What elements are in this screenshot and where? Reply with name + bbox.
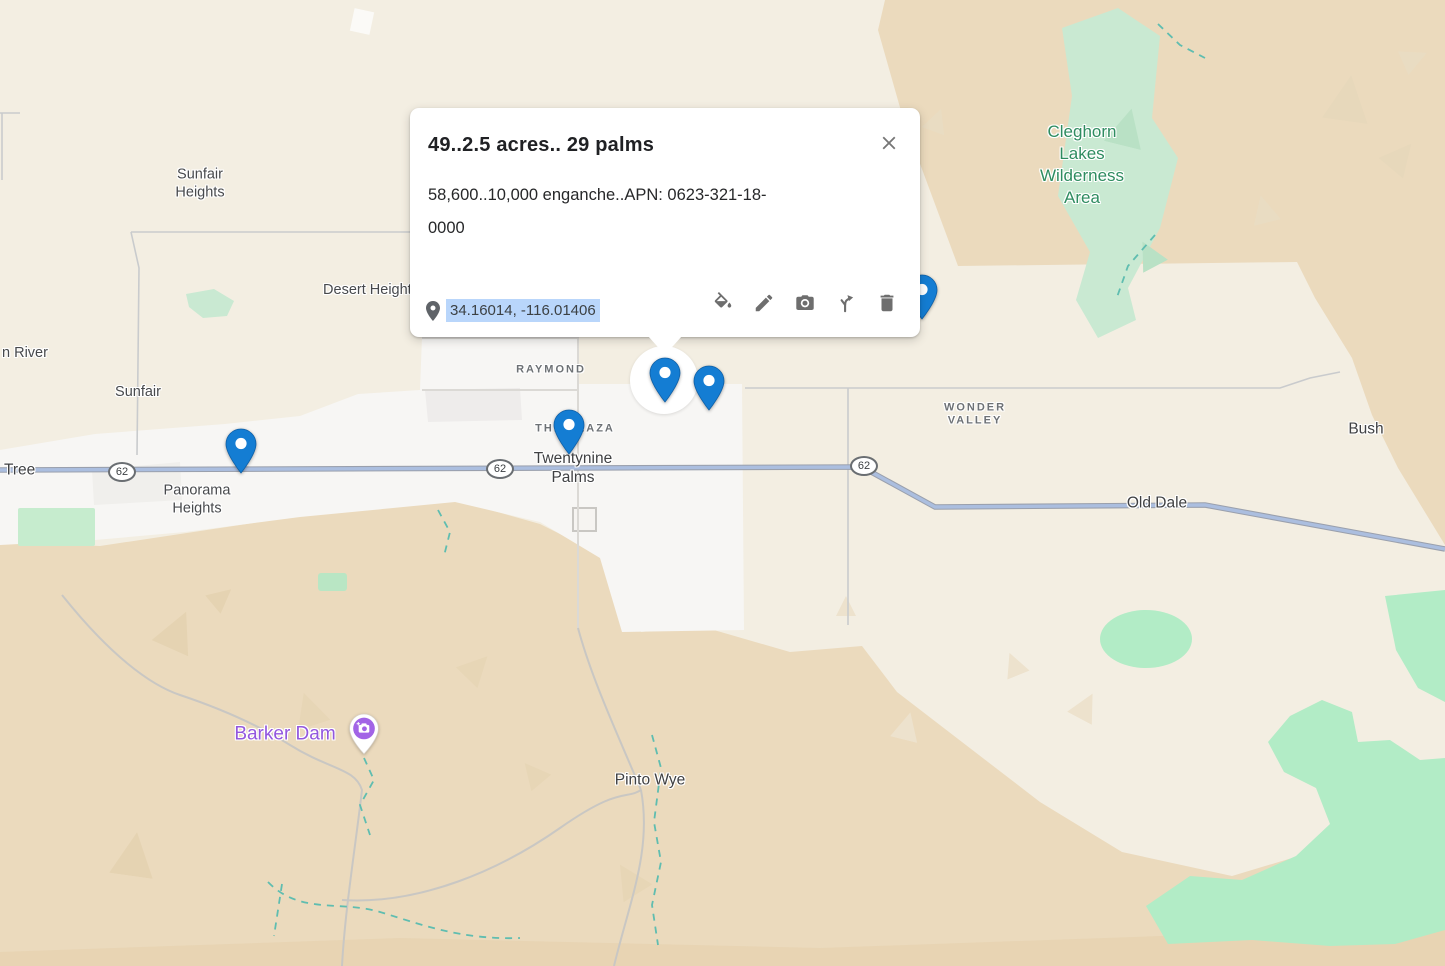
map-label-barker-dam: Barker Dam: [234, 722, 335, 745]
map-label-desert-heights: Desert Heights: [323, 282, 419, 300]
popup-pointer: [648, 336, 682, 355]
map-label-wonder-valley: WONDER VALLEY: [944, 402, 1006, 429]
photo-button[interactable]: [794, 292, 816, 314]
description-line-1: 58,600..10,000 enganche..APN: 0623-321-1…: [428, 186, 767, 204]
popup-title: 49..2.5 acres.. 29 palms: [410, 108, 920, 157]
map-canvas[interactable]: Sunfair Heights Desert Heights n River S…: [0, 0, 1445, 966]
park-small: [318, 573, 347, 591]
park-oval-southeast: [1100, 610, 1192, 668]
park-rect: [18, 508, 95, 546]
map-label-twentynine-palms: Twentynine Palms: [534, 450, 612, 488]
close-button[interactable]: [878, 132, 900, 157]
relief-shading: [998, 648, 1029, 679]
barker-dam-photo-pin[interactable]: [347, 713, 381, 755]
map-marker-blue[interactable]: [225, 428, 257, 474]
coordinates-row[interactable]: 34.16014, -116.01406: [426, 299, 600, 322]
map-label-sunfair: Sunfair: [115, 384, 161, 402]
map-label-pinto-wye: Pinto Wye: [615, 772, 686, 791]
popup-actions: [712, 292, 898, 314]
map-label-tree: Tree: [4, 462, 35, 481]
map-label-river: n River: [2, 345, 48, 363]
paint-bucket-icon: [712, 292, 734, 314]
relief-shading: [1067, 687, 1105, 725]
trash-icon: [876, 292, 898, 314]
route-62-shield: 62: [108, 462, 136, 482]
place-pin-icon: [426, 301, 440, 321]
pencil-icon: [753, 292, 775, 314]
map-marker-blue[interactable]: [553, 409, 585, 455]
info-card: 49..2.5 acres.. 29 palms 58,600..10,000 …: [410, 108, 920, 337]
relief-shading: [836, 596, 856, 616]
description-line-2: 0000: [428, 219, 465, 237]
directions-icon: [835, 292, 857, 314]
directions-button[interactable]: [835, 292, 857, 314]
edit-button[interactable]: [753, 292, 775, 314]
coordinates-value[interactable]: 34.16014, -116.01406: [446, 299, 600, 322]
map-label-raymond: RAYMOND: [516, 363, 586, 376]
route-62-shield: 62: [486, 459, 514, 479]
style-button[interactable]: [712, 292, 734, 314]
map-marker-selected[interactable]: [649, 357, 681, 403]
map-label-cleghorn-wilderness: Cleghorn Lakes Wilderness Area: [1040, 121, 1124, 209]
map-label-panorama-heights: Panorama Heights: [164, 482, 231, 517]
popup-description: 58,600..10,000 enganche..APN: 0623-321-1…: [428, 179, 890, 245]
delete-button[interactable]: [876, 292, 898, 314]
close-icon: [878, 132, 900, 154]
camera-icon: [794, 292, 816, 314]
map-marker-blue[interactable]: [693, 365, 725, 411]
map-label-sunfair-heights: Sunfair Heights: [175, 166, 224, 201]
building-outline: [572, 507, 597, 532]
terrain-white-quad: [350, 8, 374, 35]
map-label-bush: Bush: [1348, 421, 1383, 440]
route-62-shield: 62: [850, 456, 878, 476]
map-label-old-dale: Old Dale: [1127, 495, 1187, 514]
